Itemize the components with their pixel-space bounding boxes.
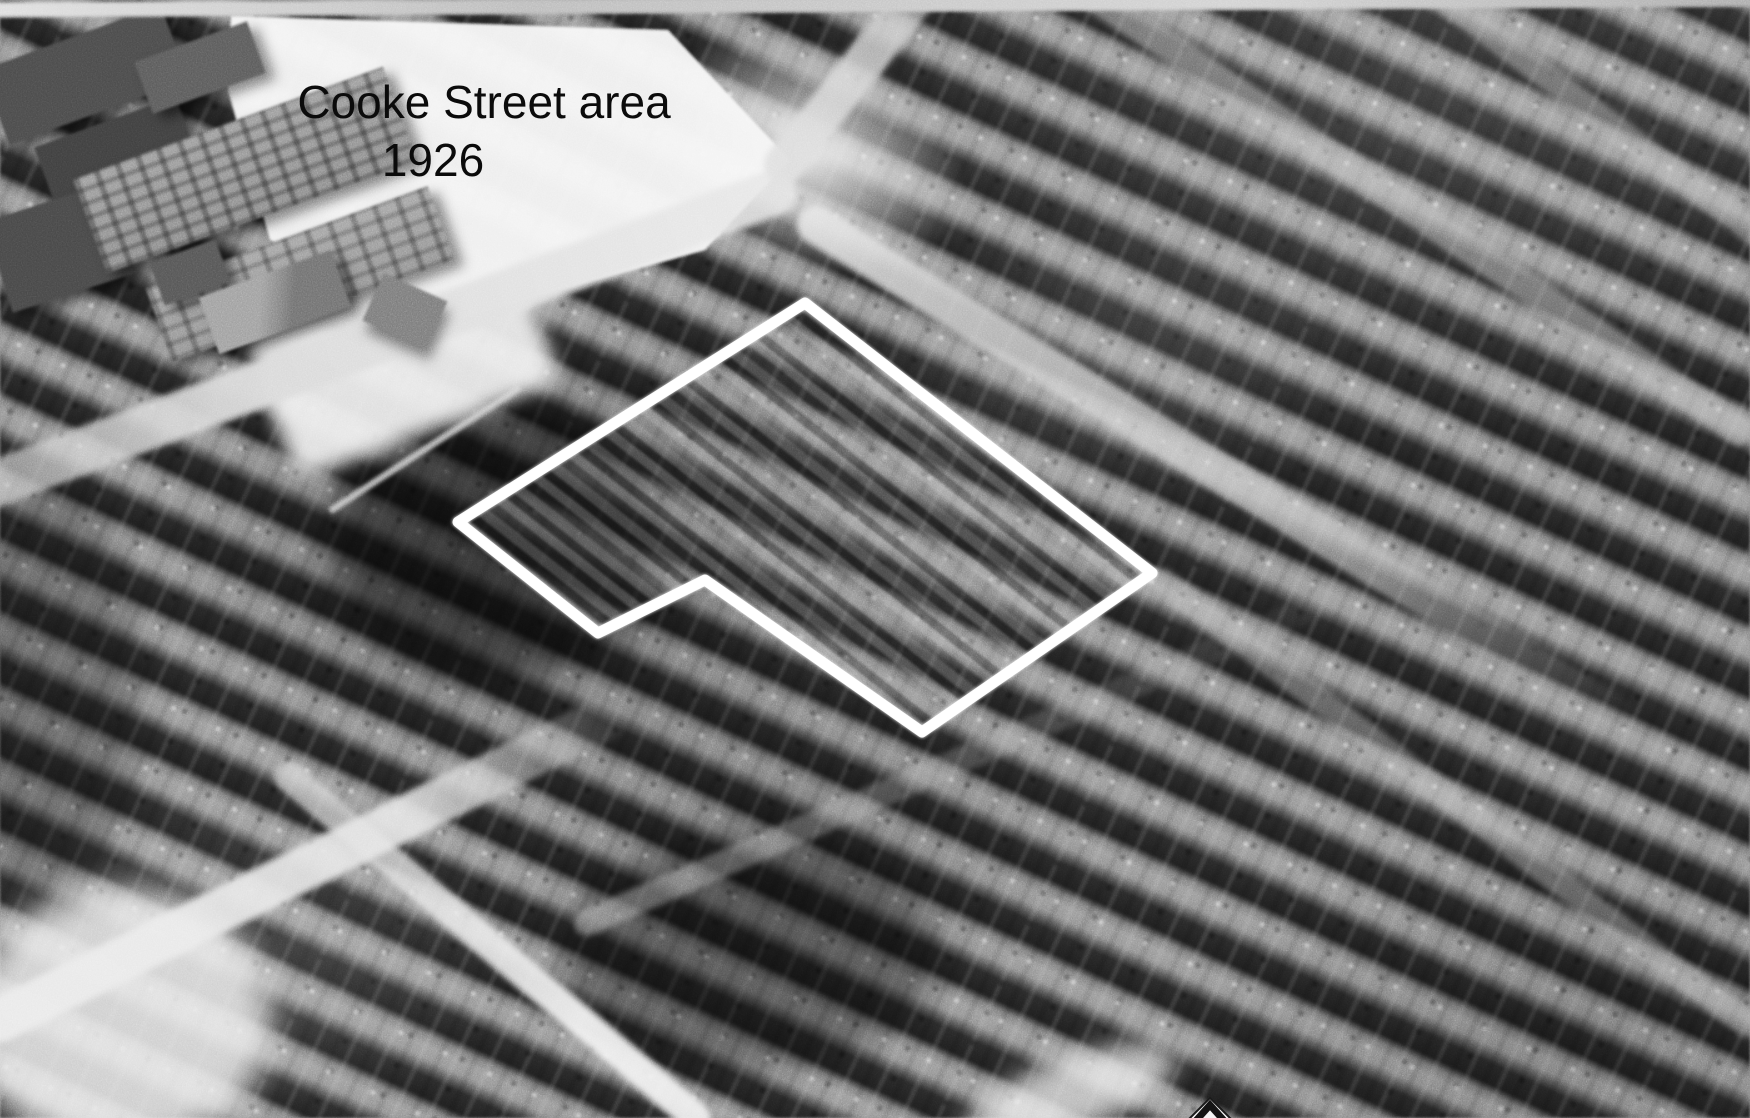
caption-line-1: Cooke Street area xyxy=(284,78,684,126)
aerial-photo: Cooke Street area 1926 xyxy=(0,0,1750,1118)
caption-line-2: 1926 xyxy=(233,136,633,184)
